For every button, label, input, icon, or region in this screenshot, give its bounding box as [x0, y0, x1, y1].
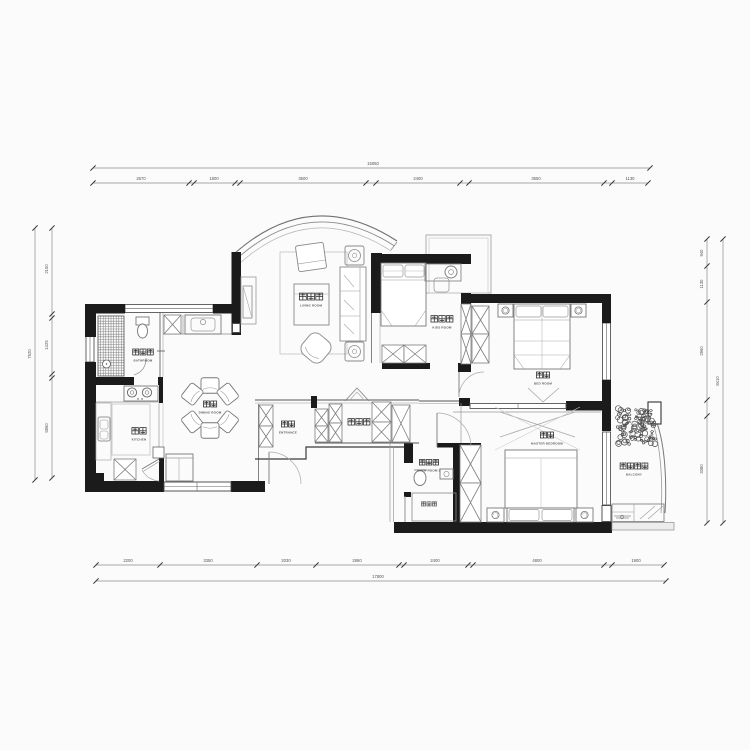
- svg-text:940: 940: [699, 249, 704, 257]
- svg-text:1800: 1800: [209, 176, 219, 181]
- svg-text:LIVING ROOM: LIVING ROOM: [300, 304, 323, 308]
- svg-text:1130: 1130: [699, 279, 704, 289]
- svg-text:BATHROOM: BATHROOM: [133, 359, 152, 363]
- svg-text:2030: 2030: [281, 558, 291, 563]
- svg-text:17800: 17800: [372, 574, 384, 579]
- svg-text:3380: 3380: [699, 464, 704, 474]
- svg-text:2200: 2200: [123, 558, 133, 563]
- svg-text:15050: 15050: [367, 161, 379, 166]
- svg-text:3350: 3350: [203, 558, 213, 563]
- svg-text:2670: 2670: [136, 176, 146, 181]
- svg-text:2960: 2960: [699, 346, 704, 356]
- svg-text:BATH ROOM 2: BATH ROOM 2: [418, 469, 441, 473]
- svg-text:8410: 8410: [715, 376, 720, 386]
- svg-text:KIDS ROOM: KIDS ROOM: [432, 326, 451, 330]
- svg-text:4800: 4800: [532, 558, 542, 563]
- svg-text:3550: 3550: [531, 176, 541, 181]
- svg-text:MASTER BEDROOM: MASTER BEDROOM: [531, 442, 563, 446]
- svg-text:7520: 7520: [27, 349, 32, 359]
- svg-text:1900: 1900: [631, 558, 641, 563]
- svg-text:BED ROOM: BED ROOM: [534, 382, 552, 386]
- svg-text:2860: 2860: [352, 558, 362, 563]
- svg-text:DINING ROOM: DINING ROOM: [199, 411, 222, 415]
- svg-text:KITCHEN: KITCHEN: [132, 438, 147, 442]
- svg-text:1425: 1425: [44, 340, 49, 350]
- svg-text:1130: 1130: [625, 176, 635, 181]
- svg-text:5860: 5860: [44, 423, 49, 433]
- svg-text:3500: 3500: [298, 176, 308, 181]
- svg-text:BALCONY: BALCONY: [626, 473, 642, 477]
- svg-text:2150: 2150: [44, 264, 49, 274]
- svg-text:2400: 2400: [430, 558, 440, 563]
- svg-text:2400: 2400: [413, 176, 423, 181]
- svg-text:ENTRANCE: ENTRANCE: [279, 431, 297, 435]
